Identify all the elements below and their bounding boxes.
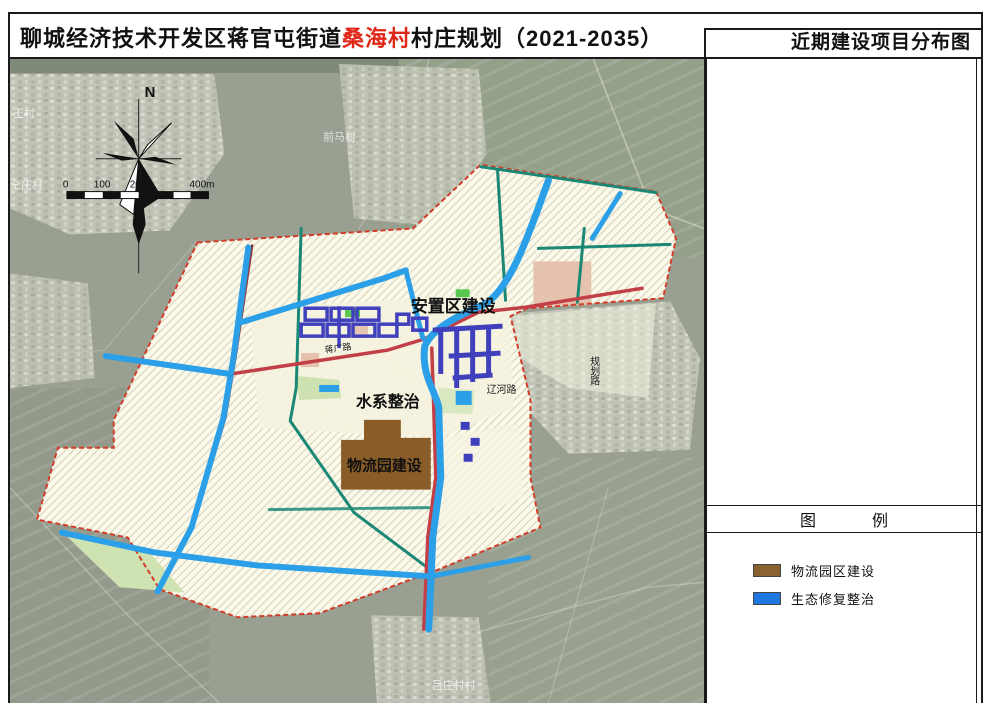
bright-green-2 (456, 289, 470, 297)
logistics-swatch (753, 564, 781, 577)
title-highlight: 桑海村 (342, 21, 411, 53)
scale-tick-0: 0 (63, 180, 69, 191)
label-village-bottom: 吕庄村村 (432, 678, 476, 692)
map-area[interactable]: 安置区建设 水系整治 物流园建设 蒋广路 辽河路 规划路 前马村 王村 仝庄村 … (10, 59, 706, 703)
legend-item-logistics: 物流园区建设 (753, 561, 981, 580)
scale-tick-100: 100 (94, 180, 111, 191)
legend-body: 物流园区建设 生态修复整治 (707, 533, 981, 703)
title-suffix: 村庄规划（2021-2035） (411, 21, 663, 53)
label-village-top: 前马村 (323, 130, 356, 144)
sheet-subtitle: 近期建设项目分布图 (704, 28, 981, 57)
label-water-project: 水系整治 (356, 392, 420, 411)
planning-sheet: 聊城经济技术开发区蒋官屯街道桑海村村庄规划（2021-2035） 近期建设项目分… (0, 0, 991, 709)
label-village-left: 仝庄村 (10, 178, 43, 192)
planning-map-svg: 安置区建设 水系整治 物流园建设 蒋广路 辽河路 规划路 前马村 王村 仝庄村 … (10, 59, 704, 703)
title-bar: 聊城经济技术开发区蒋官屯街道桑海村村庄规划（2021-2035） 近期建设项目分… (10, 14, 981, 59)
scale-tick-400: 400m (190, 180, 215, 191)
legend-title-char1: 图 (800, 507, 816, 531)
legend-item-ecology: 生态修复整治 (753, 589, 981, 608)
pond (456, 391, 472, 405)
ecology-swatch-label: 生态修复整治 (791, 589, 875, 608)
north-label: N (145, 84, 156, 101)
main-title: 聊城经济技术开发区蒋官屯街道桑海村村庄规划（2021-2035） (10, 14, 704, 57)
label-resettlement-project: 安置区建设 (411, 296, 496, 316)
village-texture-left (10, 273, 95, 388)
logistics-swatch-label: 物流园区建设 (791, 561, 875, 580)
label-logistics-project: 物流园建设 (347, 457, 422, 475)
ecology-swatch (753, 592, 781, 605)
legend-title-char2: 例 (872, 507, 888, 531)
title-prefix: 聊城经济技术开发区蒋官屯街道 (20, 21, 342, 53)
legend-sidebar: 图 例 物流园区建设 生态修复整治 (706, 59, 981, 703)
sidebar-empty-panel (707, 59, 981, 506)
scale-tick-200: 200 (130, 180, 147, 191)
label-guihua-road: 规划路 (588, 355, 600, 387)
label-liaohe-road: 辽河路 (487, 383, 517, 396)
legend-header: 图 例 (707, 506, 981, 533)
label-village-left-top: 王村 (13, 106, 35, 120)
content-row: 安置区建设 水系整治 物流园建设 蒋广路 辽河路 规划路 前马村 王村 仝庄村 … (10, 59, 981, 703)
pond-strip (319, 385, 339, 392)
sheet-frame: 聊城经济技术开发区蒋官屯街道桑海村村庄规划（2021-2035） 近期建设项目分… (8, 12, 983, 703)
